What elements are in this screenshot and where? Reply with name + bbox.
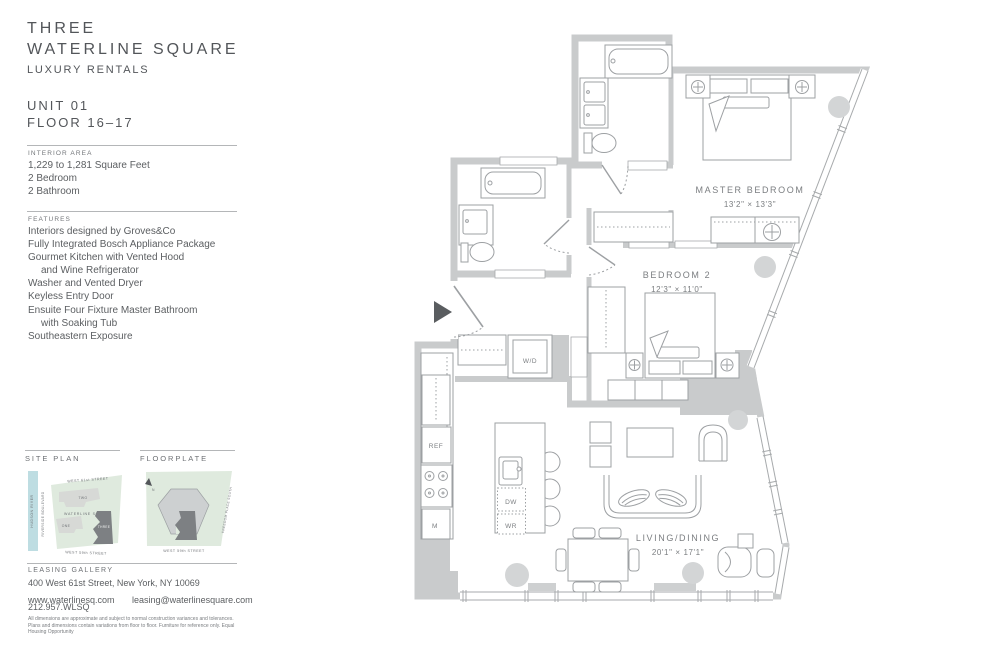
nightstand-icon (626, 353, 643, 378)
unit-floor: FLOOR 16–17 (27, 114, 134, 131)
floorplate-map: N FREEDOM PLACE SOUTH WEST 59th STREET (140, 466, 242, 558)
microwave-label: M (432, 523, 438, 530)
dresser-icon (711, 217, 799, 243)
feature-item: Washer and Vented Dryer (28, 277, 215, 290)
feature-item: Fully Integrated Bosch Appliance Package (28, 238, 215, 251)
leasing-address: 400 West 61st Street, New York, NY 10069 (28, 578, 200, 590)
living-dining-label: LIVING/DINING (636, 533, 720, 543)
feature-item: and Wine Refrigerator (28, 264, 215, 277)
toilet-icon (461, 243, 494, 263)
west-59-street-label: WEST 59th STREET (65, 550, 107, 555)
dishwasher-label: DW (505, 499, 517, 506)
divider (27, 211, 237, 212)
features-heading: FEATURES (28, 216, 71, 223)
master-bedroom-label: MASTER BEDROOM (696, 185, 805, 195)
site-plan-heading: SITE PLAN (25, 454, 80, 463)
living-dining-dims: 20'1" × 17'1" (652, 548, 704, 557)
leasing-heading: LEASING GALLERY (28, 567, 113, 574)
stove-icon (421, 465, 452, 507)
side-table-icon (757, 549, 774, 577)
feature-item: Keyless Entry Door (28, 290, 215, 303)
wine-refrigerator-label: WR (505, 523, 517, 530)
interior-area-list: 1,229 to 1,281 Square Feet 2 Bedroom 2 B… (28, 159, 150, 198)
building-three-label: THREE (98, 525, 110, 529)
site-plan-map: HUDSON RIVER RIVERSIDE BOULEVARD WEST 61… (25, 466, 127, 558)
brand: THREE WATERLINE SQUARE LUXURY RENTALS (27, 18, 239, 76)
pouf-icon (682, 562, 704, 584)
ottoman-square-icon (590, 446, 611, 467)
feature-item: Southeastern Exposure (28, 330, 215, 343)
leasing-email: leasing@waterlinesquare.com (132, 595, 253, 605)
interior-area-line: 2 Bathroom (28, 185, 150, 198)
floorplate-heading: FLOORPLATE (140, 454, 208, 463)
master-bedroom-dims: 13'2" × 13'3" (724, 200, 776, 209)
master-closet-icon (594, 212, 673, 242)
riverside-boulevard-label: RIVERSIDE BOULEVARD (41, 491, 45, 536)
brand-line-2: WATERLINE SQUARE (27, 39, 239, 60)
refrigerator-label: REF (429, 443, 444, 450)
unit-number: UNIT 01 (27, 97, 134, 114)
interior-area-heading: INTERIOR AREA (28, 150, 93, 157)
entry-closet-icon (458, 335, 506, 365)
divider (27, 563, 237, 564)
feature-item: with Soaking Tub (28, 317, 215, 330)
ottoman-square-icon (590, 422, 611, 443)
bedroom2-label: BEDROOM 2 (643, 270, 711, 280)
leasing-phone: 212.957.WLSQ (28, 602, 90, 614)
pouf-icon (505, 563, 529, 587)
round-chair-icon (754, 256, 776, 278)
side-table-round-icon (728, 410, 748, 430)
interior-area-line: 2 Bedroom (28, 172, 150, 185)
washer-dryer-icon (508, 335, 552, 378)
master-bed-icon (703, 75, 791, 160)
feature-item: Ensuite Four Fixture Master Bathroom (28, 304, 215, 317)
wardrobe-icon (588, 287, 625, 353)
ptac-unit (528, 583, 556, 591)
brand-line-1: THREE (27, 18, 239, 39)
washer-dryer-label: W/D (523, 358, 537, 365)
unit-info: UNIT 01 FLOOR 16–17 (27, 97, 134, 131)
divider (27, 145, 237, 146)
disclaimer-text: All dimensions are approximate and subje… (28, 616, 246, 636)
ptac-unit (654, 583, 696, 591)
bedroom2-bed-icon (645, 293, 715, 378)
accent-table-icon (738, 534, 753, 548)
bedroom2-dims: 12'3" × 11'0" (651, 285, 703, 294)
feature-item: Interiors designed by Groves&Co (28, 225, 215, 238)
floor-plan: MASTER BEDROOM 13'2" × 13'3" BEDROOM 2 1… (405, 5, 985, 630)
building-one-label: ONE (62, 524, 71, 528)
nightstand-icon (789, 75, 815, 98)
nightstand-icon (686, 75, 710, 98)
coffee-table-icon (627, 428, 673, 457)
interior-area-line: 1,229 to 1,281 Square Feet (28, 159, 150, 172)
tv-console-icon (608, 380, 688, 400)
feature-item: Gourmet Kitchen with Vented Hood (28, 251, 215, 264)
floorplan-flyer-page: THREE WATERLINE SQUARE LUXURY RENTALS UN… (0, 0, 1000, 647)
divider (140, 450, 235, 451)
brand-line-3: LUXURY RENTALS (27, 64, 239, 76)
divider (25, 450, 120, 451)
ottoman-icon (828, 96, 850, 118)
exterior-walls (418, 38, 865, 596)
hudson-river-label: HUDSON RIVER (30, 494, 34, 527)
nightstand-icon (716, 353, 739, 378)
pantry-icon (422, 375, 450, 425)
west-59-street-label: WEST 59th STREET (163, 549, 205, 553)
toilet-icon (584, 133, 616, 153)
kitchen-island-icon (495, 423, 545, 534)
features-list: Interiors designed by Groves&Co Fully In… (28, 225, 215, 343)
building-two-label: TWO (78, 496, 87, 500)
